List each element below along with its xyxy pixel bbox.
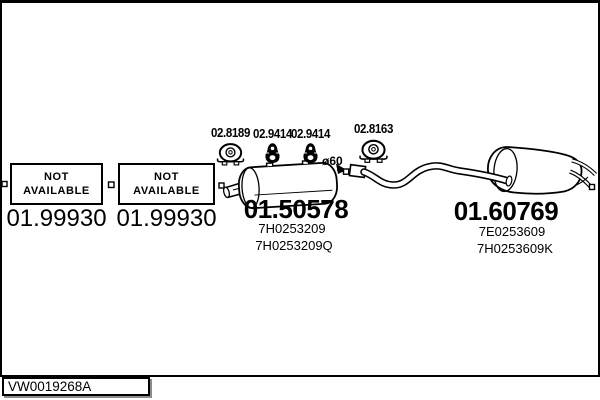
not-available-box: NOT AVAILABLE (118, 163, 215, 205)
not-available-label-line1: NOT (44, 170, 69, 184)
diameter-label: ø60 (322, 154, 343, 168)
pipe-clamp-icon (360, 141, 387, 163)
centre-muffler-oem-1: 7H0253209 (217, 221, 367, 236)
connector-square (109, 182, 115, 188)
rear-muffler-drawing (488, 147, 582, 194)
connector-square (590, 185, 595, 190)
front-part-code: 01.99930 (116, 205, 217, 233)
rubber-hanger-icon (265, 143, 279, 163)
rear-muffler-oem-1: 7E0253609 (437, 224, 587, 239)
connector-square (344, 169, 349, 174)
drawing-number-box: VW0019268A (2, 377, 150, 396)
rear-muffler-oem-2: 7H0253609K (440, 241, 590, 256)
rubber-hanger-icon (303, 143, 317, 163)
connector-square (2, 182, 7, 187)
not-available-label-line2: AVAILABLE (133, 184, 200, 198)
mount-code-label: 02.9414 (282, 127, 338, 141)
not-available-label-line2: AVAILABLE (23, 184, 90, 198)
drawing-number: VW0019268A (8, 379, 91, 394)
rear-muffler-body (488, 147, 582, 194)
centre-muffler-oem-2: 7H0253209Q (219, 238, 369, 253)
not-available-label-line1: NOT (154, 170, 179, 184)
exhaust-system-diagram: NOT AVAILABLE NOT AVAILABLE 01.99930 01.… (0, 0, 600, 400)
connector-square (219, 183, 224, 188)
rear-muffler-code: 01.60769 (431, 196, 581, 227)
mount-code-label: 02.8163 (345, 122, 401, 136)
front-part-code: 01.99930 (6, 205, 107, 233)
pipe-clamp-icon (217, 144, 243, 165)
not-available-box: NOT AVAILABLE (10, 163, 103, 205)
